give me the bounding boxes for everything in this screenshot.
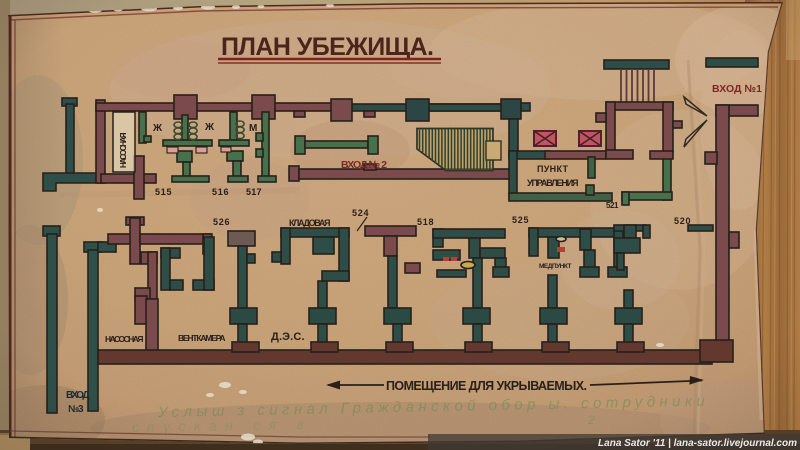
svg-text:Lana Sator '11 | lana-sator.li: Lana Sator '11 | lana-sator.livejournal.… bbox=[598, 438, 797, 449]
